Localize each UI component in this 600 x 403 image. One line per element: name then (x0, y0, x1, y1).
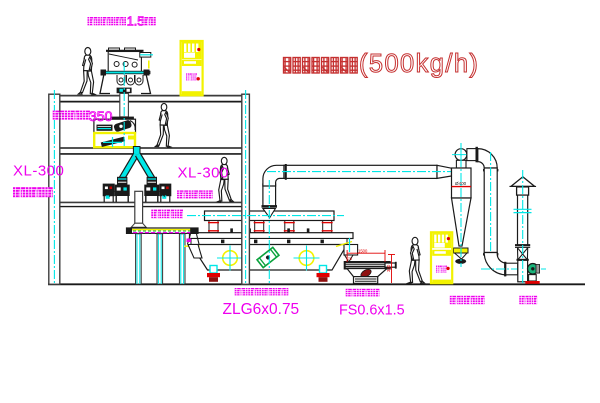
svg-text:ZLG6x0.75: ZLG6x0.75 (223, 301, 300, 318)
svg-text:XL-300: XL-300 (178, 165, 229, 182)
svg-text:XL-300: XL-300 (13, 163, 64, 180)
svg-text:350: 350 (89, 108, 113, 124)
svg-text:(500kg/h): (500kg/h) (359, 50, 479, 78)
svg-text:1500: 1500 (358, 249, 368, 254)
svg-text:FS0.6x1.5: FS0.6x1.5 (339, 303, 405, 319)
svg-text:1.5: 1.5 (127, 15, 144, 29)
svg-text:75: 75 (348, 257, 352, 261)
svg-text:340: 340 (386, 264, 391, 272)
